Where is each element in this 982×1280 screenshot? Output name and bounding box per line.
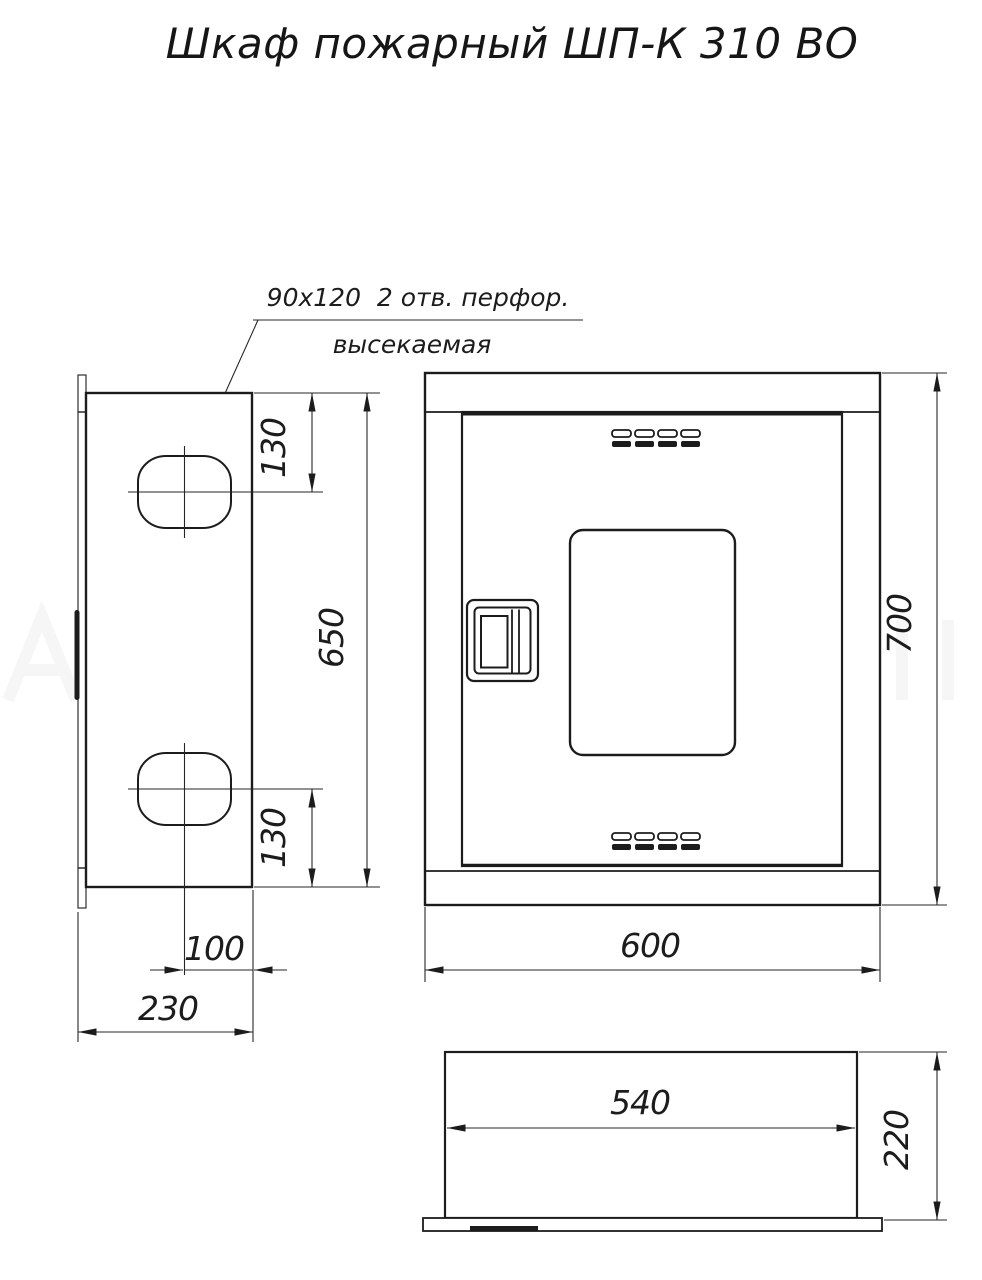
door-window [568, 530, 737, 757]
callout-line1: 90x120 2 отв. перфор. [267, 283, 570, 312]
dim-hole-inset: 100 [150, 929, 287, 970]
dim-height: 700 [880, 373, 937, 905]
dim-hole-bottom-offset: 130 [254, 789, 312, 887]
top-view: 540 220 [423, 1052, 947, 1231]
dim-hole-top-offset-text: 130 [254, 418, 293, 478]
dim-height-text: 700 [880, 594, 919, 654]
front-view: 700 600 [425, 373, 947, 982]
window-frame [570, 530, 735, 755]
callout-line2: высекаемая [333, 330, 492, 359]
dim-width: 600 [425, 926, 880, 970]
dim-depth-text: 230 [138, 989, 198, 1028]
side-handle-profile [75, 610, 80, 700]
dim-inner-width-text: 540 [610, 1083, 670, 1122]
drawing-sheet: Шкаф пожарный ШП-К 310 ВО 90x120 2 отв. … [0, 0, 982, 1280]
side-view: 130 650 130 100 230 [75, 375, 381, 1042]
dim-hole-top-offset: 130 [254, 393, 312, 492]
top-handle-mark [470, 1226, 538, 1231]
dim-mount-span: 650 [312, 393, 367, 887]
dim-hole-bottom-offset-text: 130 [254, 808, 293, 868]
dim-hole-inset-text: 100 [184, 929, 244, 968]
dim-width-text: 600 [620, 926, 680, 965]
dim-depth: 230 [78, 989, 253, 1032]
top-body [445, 1052, 857, 1218]
door-handle [467, 600, 538, 681]
drawing-canvas: Шкаф пожарный ШП-К 310 ВО 90x120 2 отв. … [0, 0, 982, 1280]
dim-top-depth-text: 220 [877, 1110, 916, 1170]
drawing-title: Шкаф пожарный ШП-К 310 ВО [166, 19, 859, 68]
dim-mount-span-text: 650 [312, 608, 351, 668]
dim-top-depth: 220 [877, 1052, 937, 1220]
